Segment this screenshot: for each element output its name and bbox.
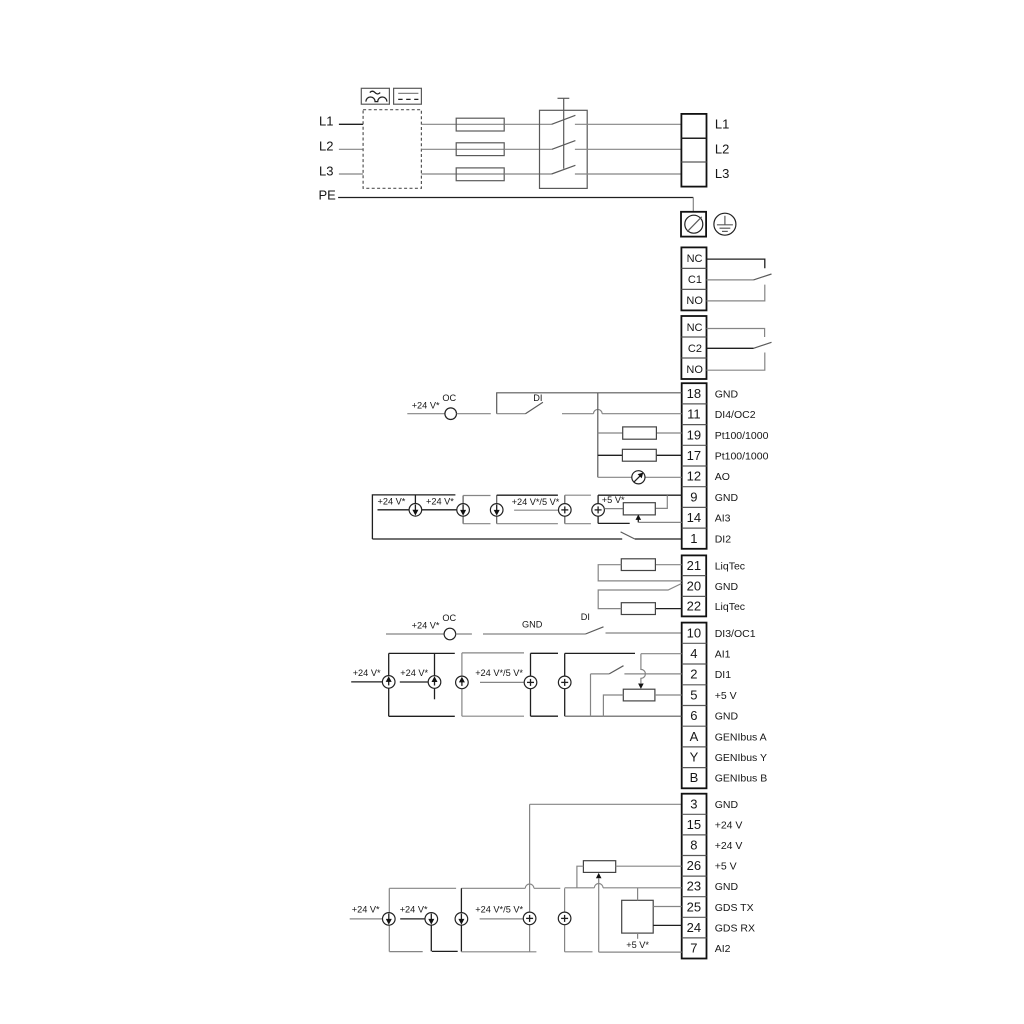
svg-text:GND: GND [715,881,739,893]
svg-text:NC: NC [687,253,703,265]
svg-text:20: 20 [687,578,701,593]
svg-text:19: 19 [687,427,701,442]
svg-text:L2: L2 [319,139,333,154]
svg-text:12: 12 [687,469,701,484]
svg-text:3: 3 [690,796,697,811]
svg-text:+5 V: +5 V [715,861,737,873]
svg-text:GENIbus B: GENIbus B [715,773,768,785]
svg-text:17: 17 [687,448,701,463]
svg-text:L3: L3 [319,164,333,179]
svg-text:+24 V*/5 V*: +24 V*/5 V* [475,668,523,678]
svg-text:DI4/OC2: DI4/OC2 [715,409,756,421]
svg-text:1: 1 [690,531,697,546]
svg-text:+24 V*: +24 V* [353,668,381,678]
svg-text:10: 10 [687,625,701,640]
svg-text:LiqTec: LiqTec [715,560,745,572]
svg-text:9: 9 [690,489,697,504]
svg-text:7: 7 [690,941,697,956]
svg-text:GND: GND [715,581,739,593]
svg-text:GDS RX: GDS RX [715,922,755,934]
svg-text:+24 V*/5 V*: +24 V*/5 V* [475,904,523,914]
svg-text:11: 11 [687,407,701,422]
svg-text:+24 V: +24 V [715,840,743,852]
svg-text:LiqTec: LiqTec [715,601,745,613]
svg-text:GND: GND [715,492,739,504]
svg-text:14: 14 [687,510,701,525]
svg-text:GND: GND [715,799,739,811]
svg-text:L3: L3 [715,166,729,181]
svg-text:26: 26 [687,858,701,873]
svg-text:Pt100/1000: Pt100/1000 [715,450,769,462]
svg-text:B: B [690,770,699,785]
svg-text:8: 8 [690,838,697,853]
svg-text:6: 6 [690,708,697,723]
svg-text:+5 V*: +5 V* [626,940,649,950]
svg-text:NO: NO [686,295,703,307]
svg-text:GND: GND [522,620,543,630]
svg-text:GDS TX: GDS TX [715,902,754,914]
svg-text:23: 23 [687,879,701,894]
svg-text:2: 2 [690,667,697,682]
svg-text:A: A [690,729,699,744]
svg-text:AI3: AI3 [715,513,731,525]
svg-text:25: 25 [687,899,701,914]
svg-text:PE: PE [319,188,337,203]
svg-text:5: 5 [690,688,697,703]
svg-text:C2: C2 [688,343,702,355]
svg-text:OC: OC [442,613,456,623]
svg-text:+24 V*: +24 V* [378,497,406,507]
svg-text:+24 V*: +24 V* [352,904,380,914]
svg-text:21: 21 [687,558,701,573]
svg-text:L2: L2 [715,141,729,156]
svg-text:AI1: AI1 [715,649,731,661]
svg-text:+5 V*: +5 V* [602,495,625,505]
svg-text:+24 V*: +24 V* [412,401,440,411]
svg-text:L1: L1 [319,114,333,129]
svg-text:Pt100/1000: Pt100/1000 [715,430,769,442]
svg-text:+24 V*: +24 V* [400,668,428,678]
svg-text:AO: AO [715,471,730,483]
svg-text:4: 4 [690,646,697,661]
svg-text:NO: NO [686,364,703,376]
svg-text:DI1: DI1 [715,669,732,681]
svg-text:DI: DI [581,612,590,622]
svg-text:+5 V: +5 V [715,690,737,702]
svg-text:GND: GND [715,388,739,400]
svg-text:GENIbus A: GENIbus A [715,731,767,743]
svg-text:+24 V: +24 V [715,819,743,831]
svg-text:DI2: DI2 [715,533,732,545]
svg-text:GENIbus Y: GENIbus Y [715,752,767,764]
svg-text:22: 22 [687,599,701,614]
svg-text:+24 V*: +24 V* [412,621,440,631]
svg-text:DI: DI [533,393,542,403]
svg-text:AI2: AI2 [715,943,731,955]
svg-text:+24 V*: +24 V* [400,904,428,914]
svg-text:24: 24 [687,920,701,935]
svg-text:C1: C1 [688,274,702,286]
svg-text:18: 18 [687,386,701,401]
svg-text:15: 15 [687,817,701,832]
svg-text:+24 V*: +24 V* [426,497,454,507]
svg-text:GND: GND [715,711,739,723]
svg-text:Y: Y [690,750,699,765]
svg-text:DI3/OC1: DI3/OC1 [715,628,756,640]
svg-text:NC: NC [687,322,703,334]
svg-text:+24 V*/5 V*: +24 V*/5 V* [512,497,560,507]
svg-text:L1: L1 [715,116,729,131]
svg-text:OC: OC [442,393,456,403]
